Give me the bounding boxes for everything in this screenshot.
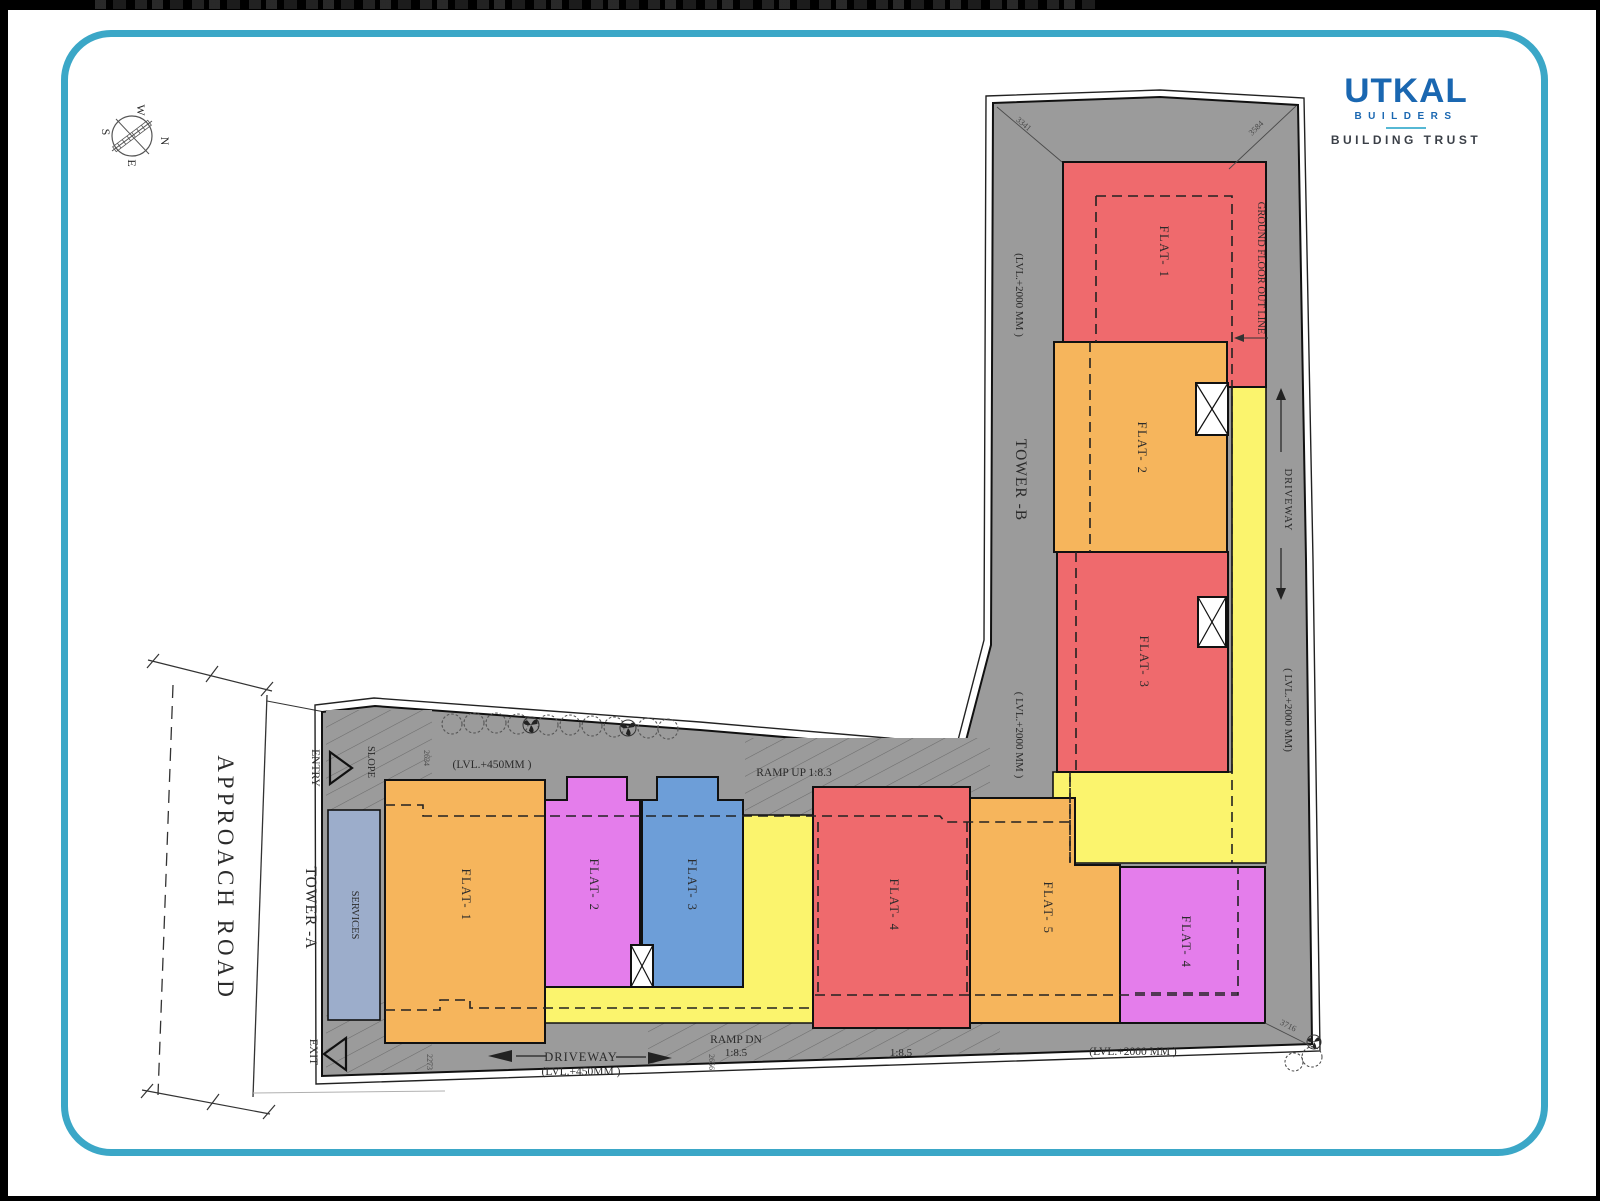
logo-brand-text: UTKAL: [1326, 74, 1486, 107]
cropped-top-bar: [0, 0, 1600, 10]
left-black-edge: [0, 0, 8, 1201]
logo-tagline-text: BUILDING TRUST: [1326, 133, 1486, 147]
utkal-logo: UTKAL BUILDERS BUILDING TRUST: [1326, 74, 1486, 147]
cropped-text-fragments: [95, 0, 1095, 9]
logo-builders-text: BUILDERS: [1326, 111, 1486, 122]
site-plan-page: UTKAL BUILDERS BUILDING TRUST: [0, 0, 1600, 1201]
teal-page-border: [61, 30, 1548, 1156]
bottom-black-edge: [0, 1196, 1600, 1201]
logo-divider: [1386, 127, 1426, 129]
right-black-edge: [1596, 0, 1600, 1201]
